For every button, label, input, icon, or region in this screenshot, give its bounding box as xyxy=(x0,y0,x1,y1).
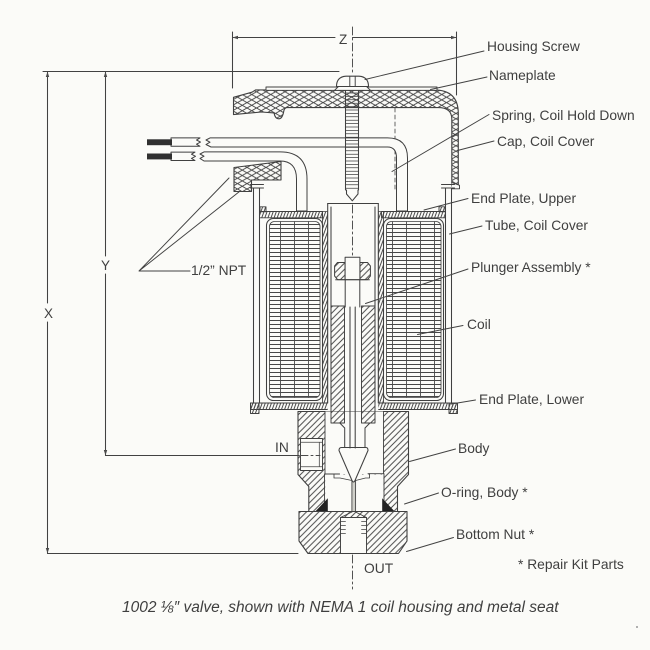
svg-text:1002 ⅛″ valve, shown with NEMA: 1002 ⅛″ valve, shown with NEMA 1 coil ho… xyxy=(122,599,559,616)
svg-text:O-ring, Body *: O-ring, Body * xyxy=(441,485,528,500)
svg-text:Spring, Coil Hold Down: Spring, Coil Hold Down xyxy=(492,108,635,123)
svg-text:* Repair Kit Parts: * Repair Kit Parts xyxy=(518,557,624,572)
svg-text:Coil: Coil xyxy=(467,317,491,332)
svg-text:End Plate, Upper: End Plate, Upper xyxy=(471,191,576,206)
svg-text:Z: Z xyxy=(339,32,347,47)
svg-text:X: X xyxy=(44,306,53,321)
svg-text:Bottom Nut *: Bottom Nut * xyxy=(456,527,535,542)
svg-text:End Plate, Lower: End Plate, Lower xyxy=(479,392,584,407)
svg-text:Tube, Coil Cover: Tube, Coil Cover xyxy=(485,218,588,233)
svg-text:IN: IN xyxy=(275,440,289,455)
svg-text:OUT: OUT xyxy=(364,561,394,576)
svg-text:Nameplate: Nameplate xyxy=(489,68,556,83)
svg-text:Cap, Coil Cover: Cap, Coil Cover xyxy=(497,134,595,149)
svg-text:Y: Y xyxy=(101,258,110,273)
svg-text:Body: Body xyxy=(458,441,490,456)
svg-text:Plunger Assembly *: Plunger Assembly * xyxy=(471,260,591,275)
svg-text:1/2” NPT: 1/2” NPT xyxy=(191,263,247,278)
svg-text:Housing Screw: Housing Screw xyxy=(487,39,580,54)
